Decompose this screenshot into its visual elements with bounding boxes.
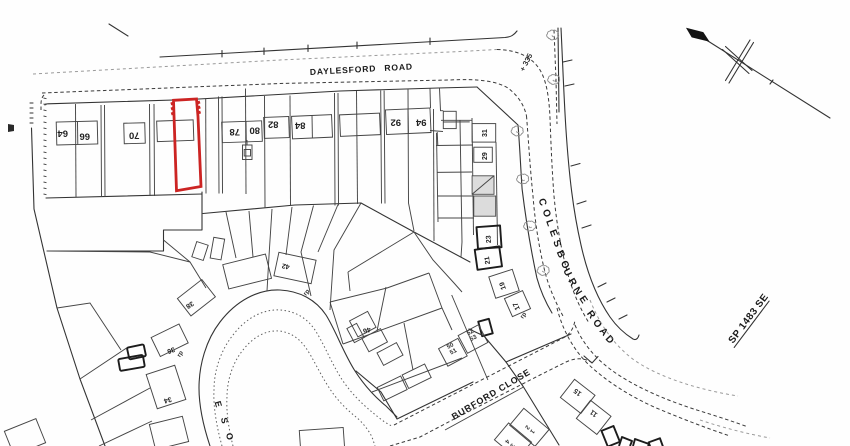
svg-text:ROAD: ROAD bbox=[384, 61, 413, 73]
svg-text:84: 84 bbox=[294, 120, 305, 131]
svg-text:66: 66 bbox=[79, 131, 90, 142]
svg-text:O: O bbox=[225, 433, 235, 440]
svg-text:94: 94 bbox=[415, 117, 426, 128]
svg-text:78: 78 bbox=[229, 126, 240, 137]
svg-text:64: 64 bbox=[57, 128, 68, 139]
svg-text:21: 21 bbox=[484, 256, 492, 265]
svg-text:29: 29 bbox=[482, 152, 489, 160]
svg-text:92: 92 bbox=[390, 117, 401, 128]
svg-text:23: 23 bbox=[485, 235, 493, 243]
svg-text:31: 31 bbox=[482, 129, 489, 137]
svg-text:70: 70 bbox=[129, 130, 140, 141]
svg-text:80: 80 bbox=[249, 125, 260, 136]
svg-text:82: 82 bbox=[268, 119, 279, 130]
